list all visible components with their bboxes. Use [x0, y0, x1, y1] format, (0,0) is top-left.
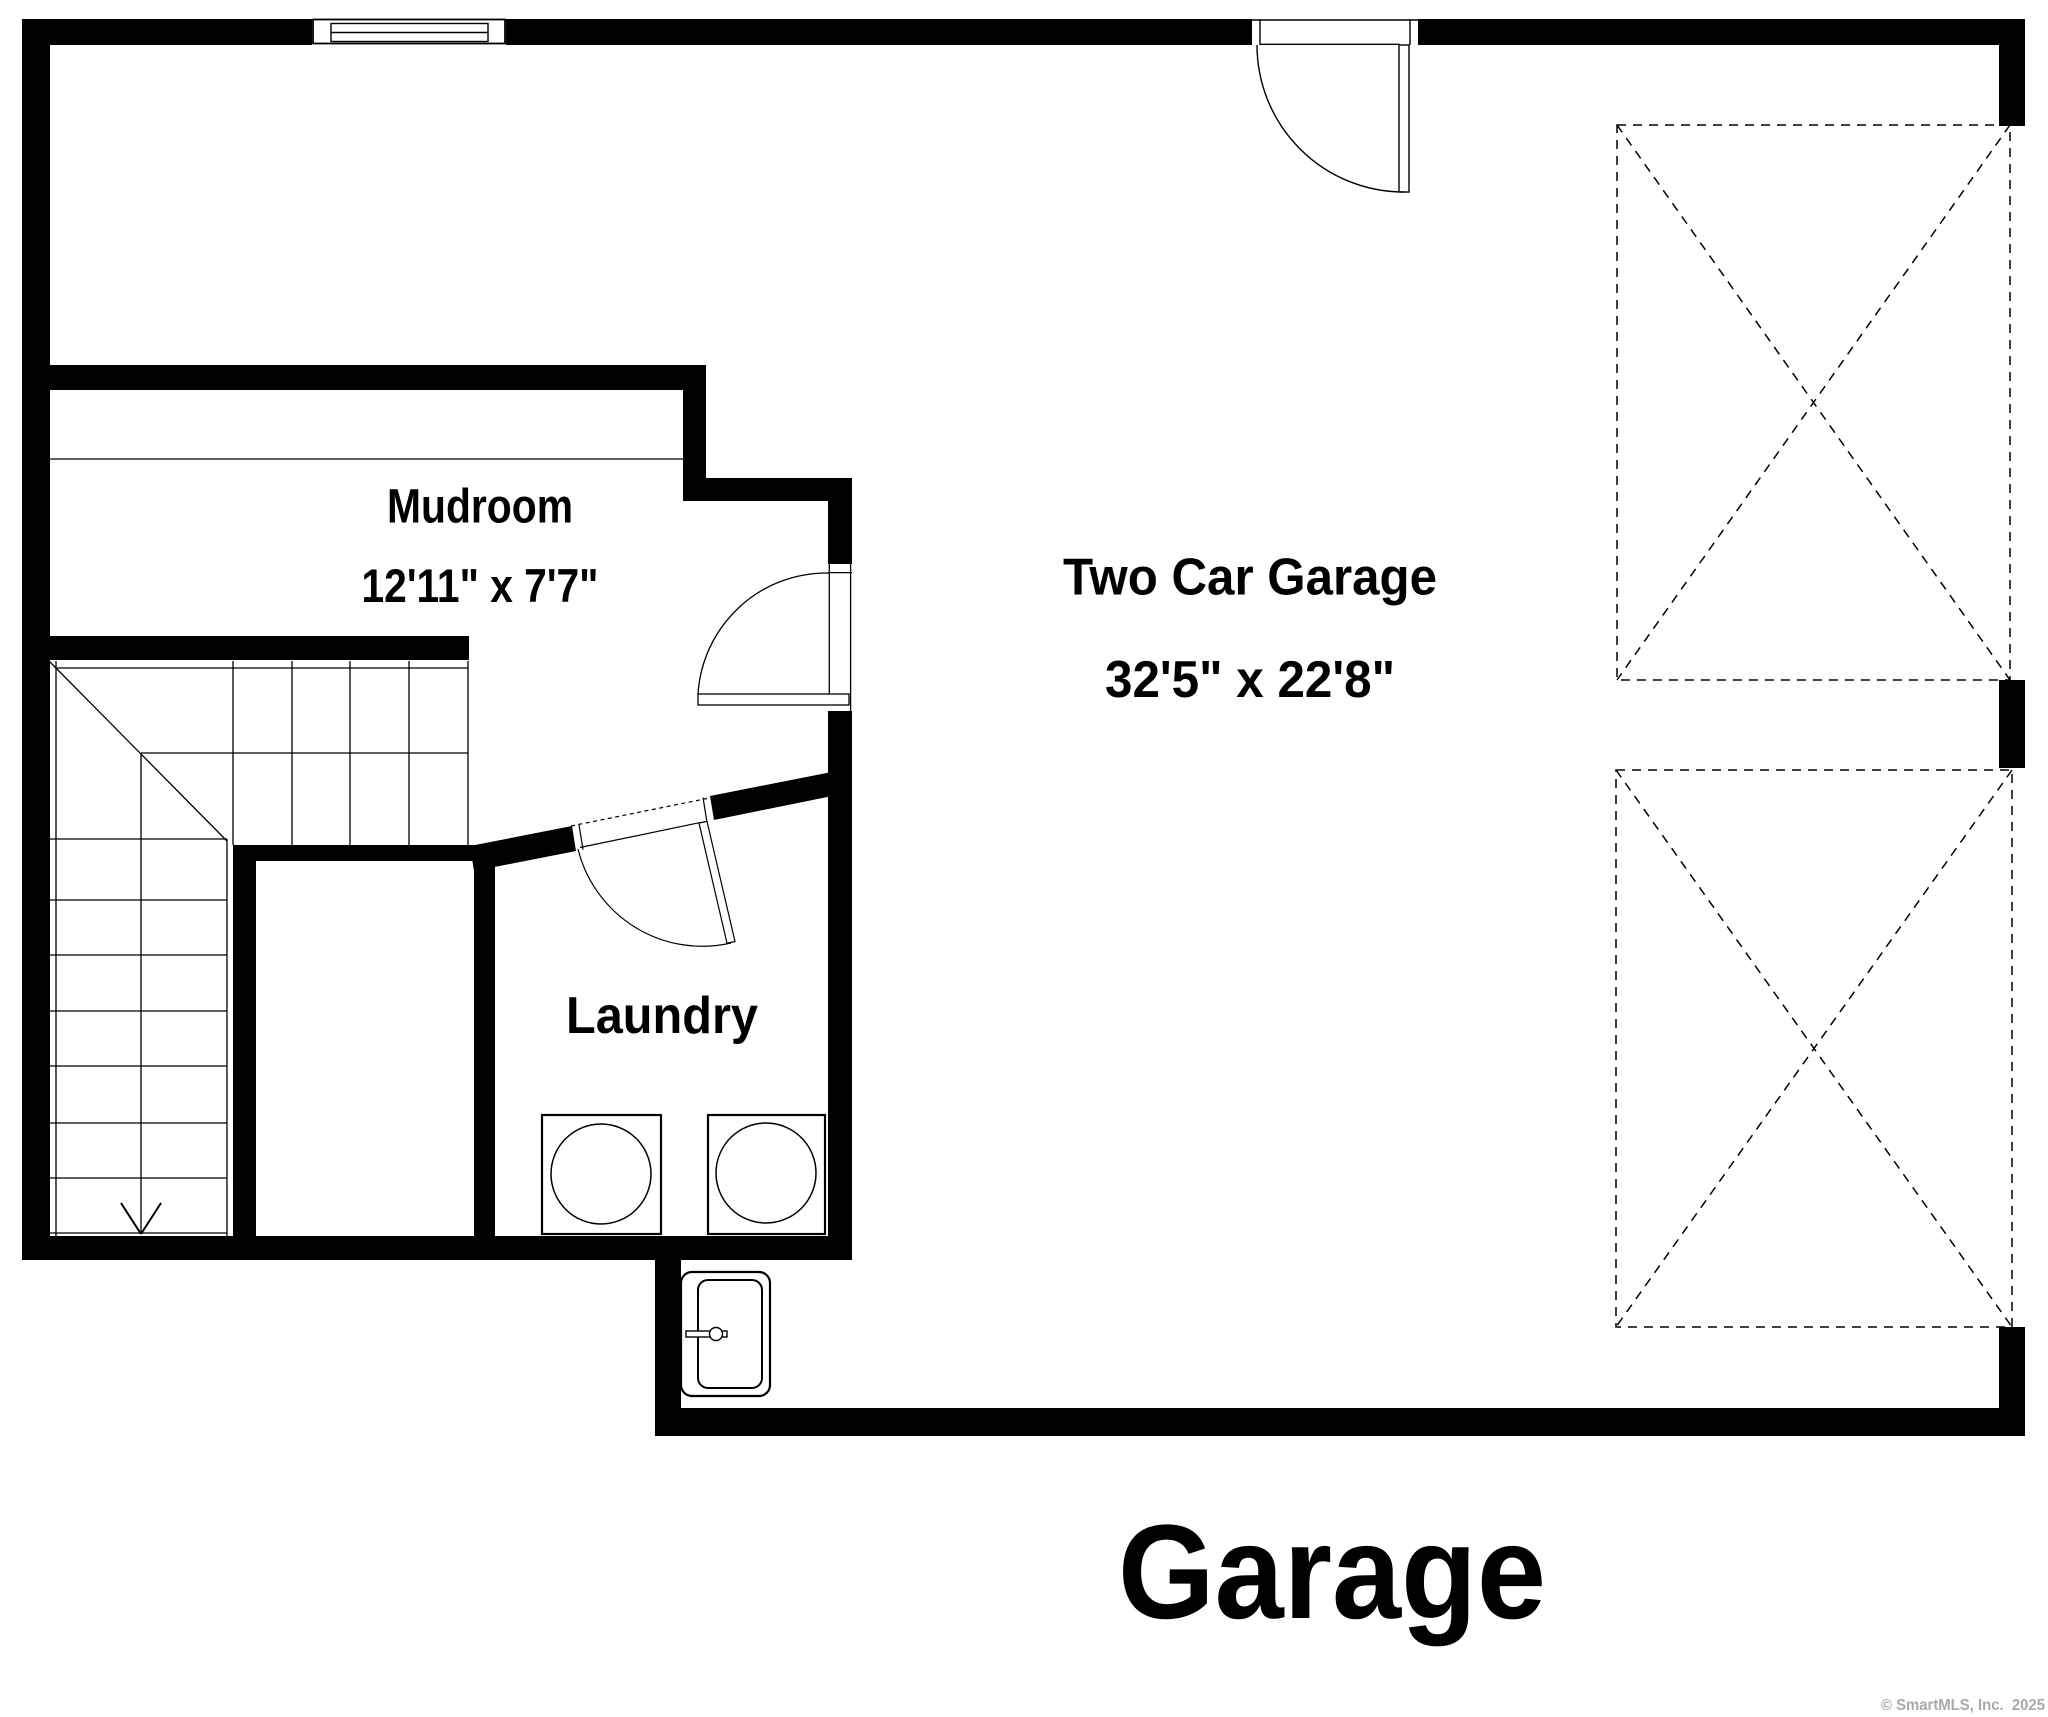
svg-text:Mudroom: Mudroom: [387, 481, 573, 534]
svg-text:32'5" x 22'8": 32'5" x 22'8": [1105, 651, 1395, 709]
svg-text:Two Car Garage: Two Car Garage: [1063, 549, 1437, 607]
svg-text:© SmartMLS, Inc. 2025: © SmartMLS, Inc. 2025: [1881, 1697, 2045, 1714]
svg-text:Garage: Garage: [1118, 1498, 1546, 1647]
svg-text:12'11" x 7'7": 12'11" x 7'7": [362, 559, 599, 612]
svg-text:Laundry: Laundry: [566, 987, 758, 1045]
